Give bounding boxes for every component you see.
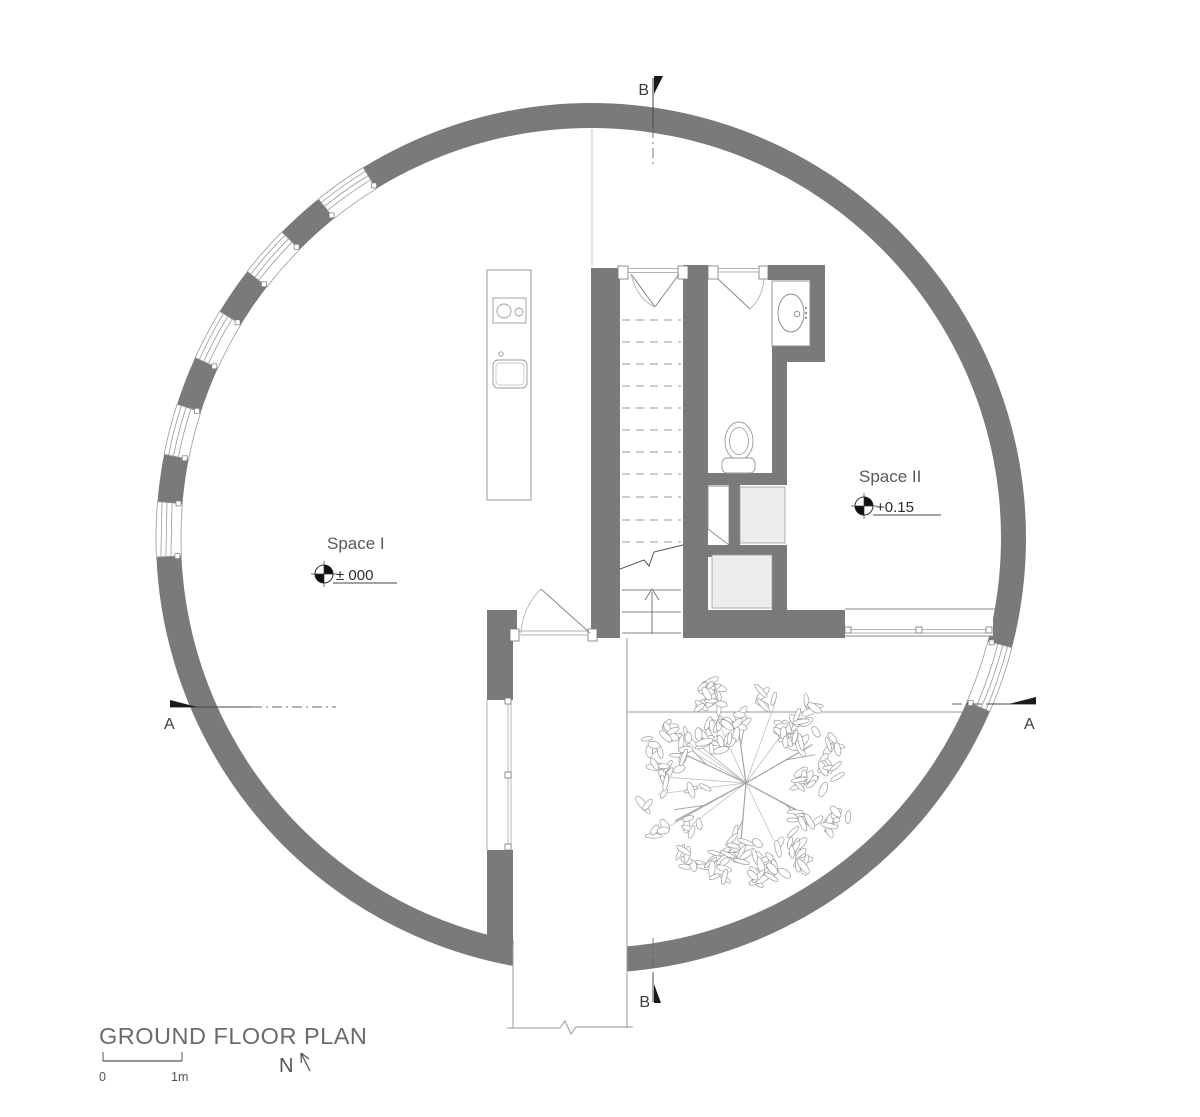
- mullion: [505, 698, 511, 704]
- window-segment: [156, 501, 182, 559]
- mullion: [845, 627, 851, 633]
- tree-leaf: [695, 818, 703, 830]
- level-label-space-1: ± 000: [336, 567, 373, 584]
- room-annotation-space-2: Space II +0.15: [851, 467, 941, 519]
- door-threshold: [718, 269, 759, 273]
- tree-leaf: [733, 712, 745, 718]
- staircase: [620, 320, 683, 634]
- section-letter-b-top: B: [638, 82, 649, 99]
- exterior-wall-ring: [156, 103, 1026, 1032]
- door-leaf: [541, 589, 590, 633]
- mullion: [505, 844, 511, 850]
- plan-title: GROUND FLOOR PLAN: [99, 1023, 367, 1049]
- window-mullion: [235, 320, 240, 325]
- window-segment: [195, 311, 241, 368]
- glazed-wall-lower-left: [487, 698, 513, 850]
- window-mullion: [261, 282, 266, 287]
- tree-leaf: [685, 732, 692, 743]
- mullion: [986, 627, 992, 633]
- closet-lower: [712, 555, 772, 608]
- door-jamb: [678, 266, 688, 279]
- stair-break-line: [620, 545, 683, 569]
- scale-zero-label: 0: [99, 1070, 106, 1084]
- door-jamb: [588, 629, 597, 641]
- tree-leaf: [817, 781, 829, 798]
- door-threshold: [519, 631, 588, 635]
- section-flag-icon: [654, 76, 663, 94]
- window-opening: [195, 311, 241, 368]
- door-leaf: [718, 279, 750, 309]
- section-letter-b-bottom: B: [639, 994, 650, 1011]
- closet-upper: [740, 487, 785, 543]
- kitchen-island: [487, 270, 531, 500]
- tree-leaf: [787, 810, 803, 814]
- window-mullion: [294, 244, 299, 249]
- tree-leaf: [751, 837, 765, 850]
- door-threshold: [628, 269, 678, 273]
- door-jamb: [759, 266, 768, 279]
- window-mullion: [195, 408, 200, 413]
- mullion: [916, 627, 922, 633]
- tree-leaf: [810, 725, 822, 738]
- bathroom-fixtures: [722, 281, 810, 473]
- tap-dot: [805, 317, 807, 319]
- window-mullion: [212, 364, 217, 369]
- stair-treads-upper: [622, 320, 681, 542]
- door-jamb: [510, 629, 519, 641]
- closet-hatch: [708, 486, 729, 545]
- window-segment: [164, 404, 201, 461]
- room-annotation-space-1: Space I ± 000: [311, 534, 397, 587]
- section-letter-a-right: A: [1024, 716, 1035, 733]
- door-jamb: [708, 266, 718, 279]
- walkway-opening: [514, 930, 627, 1032]
- door-leaf: [631, 274, 679, 307]
- level-label-space-2: +0.15: [876, 499, 914, 516]
- tree-leaf: [783, 736, 788, 748]
- window-mullion: [176, 501, 181, 506]
- title-block: GROUND FLOOR PLAN 0 1m N: [99, 1023, 367, 1084]
- tree-twig: [746, 702, 775, 783]
- toilet-tank: [722, 458, 755, 473]
- tree-plan-symbol: [634, 675, 851, 889]
- scale-1m-label: 1m: [171, 1070, 188, 1084]
- tree-leaf: [770, 692, 778, 706]
- ground-floor-plan-drawing: B B A A Space I ± 000: [0, 0, 1200, 1117]
- tap-dot: [805, 312, 807, 314]
- north-label: N: [279, 1055, 293, 1077]
- tree-twig: [697, 755, 746, 783]
- mullion: [505, 772, 511, 778]
- tap-dot: [805, 307, 807, 309]
- door-swing-arc: [750, 279, 764, 309]
- window-mullion: [989, 640, 994, 645]
- window-segment: [967, 640, 1012, 712]
- section-letter-a-left: A: [164, 716, 175, 733]
- section-flag-icon: [1009, 697, 1036, 704]
- room-label-space-1: Space I: [327, 534, 385, 553]
- scale-bar-ticks: [103, 1052, 182, 1061]
- room-label-space-2: Space II: [859, 467, 921, 486]
- north-indicator: N: [279, 1053, 310, 1077]
- tree-twig: [746, 783, 774, 840]
- tree-leaf: [845, 810, 851, 823]
- tree-branch: [741, 783, 746, 845]
- window-mullion: [372, 183, 377, 188]
- window-mullion: [329, 213, 334, 218]
- window-mullion: [968, 701, 973, 706]
- tree-leaf: [777, 866, 793, 880]
- north-arrow-icon: [301, 1053, 310, 1071]
- scale-bar: 0 1m: [99, 1052, 188, 1084]
- door-swing-arc: [521, 589, 541, 633]
- tree-leaf: [787, 818, 799, 823]
- door-jamb: [618, 266, 628, 279]
- tree-leaf: [672, 764, 686, 775]
- window-mullion: [182, 456, 187, 461]
- window-opening: [156, 502, 182, 557]
- window-mullion: [175, 554, 180, 559]
- section-flag-icon: [654, 984, 661, 1003]
- tree-leaf: [786, 825, 800, 839]
- glazed-wall-right: [845, 609, 995, 636]
